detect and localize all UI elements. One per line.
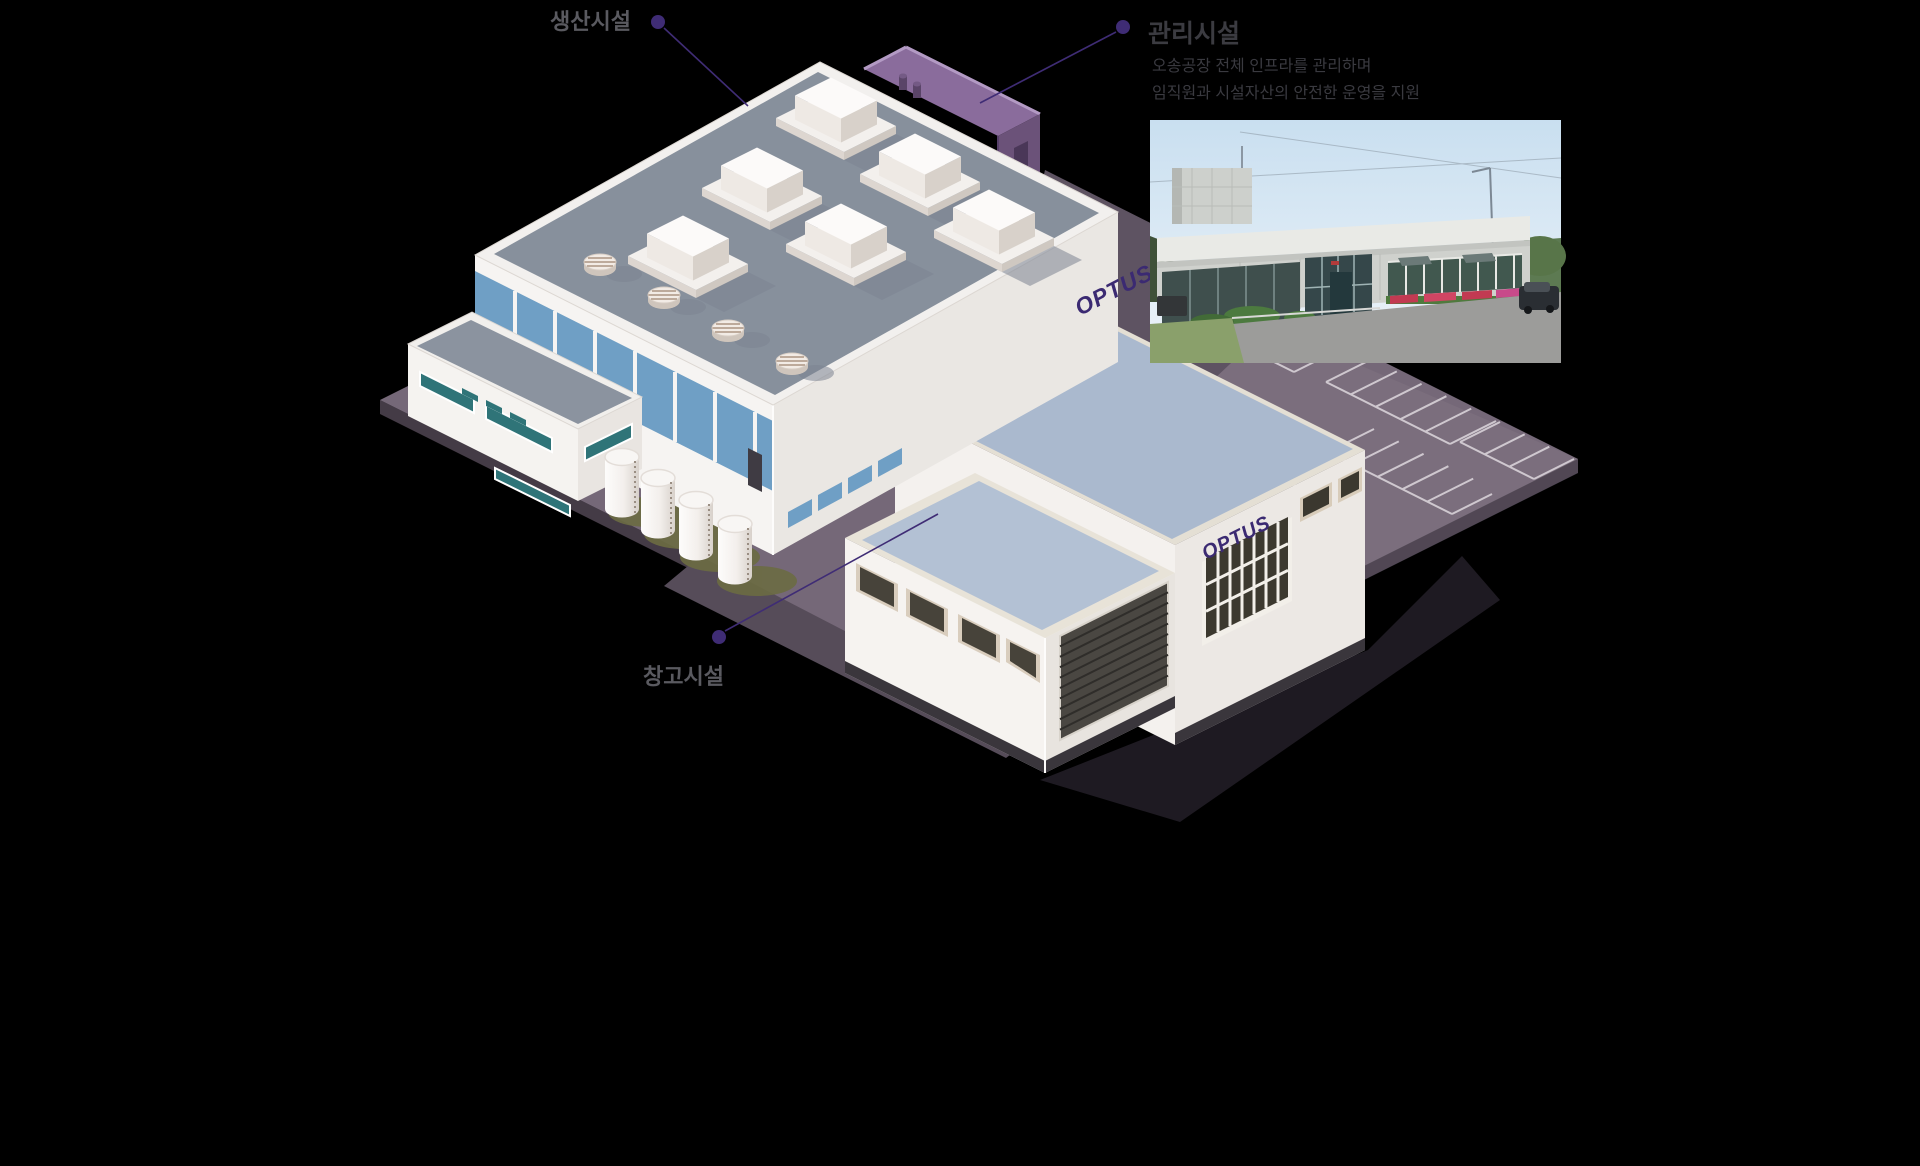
diagram-canvas: OPTUS [0, 0, 1920, 1166]
annotation-management: 관리시설 오송공장 전체 인프라를 관리하며 임직원과 시설자산의 안전한 운영… [980, 20, 1420, 103]
production-label: 생산시설 [550, 9, 631, 34]
management-description-line2: 임직원과 시설자산의 안전한 운영을 지원 [1152, 84, 1420, 102]
annotation-production: 생산시설 [550, 9, 748, 106]
management-description-line1: 오송공장 전체 인프라를 관리하며 [1152, 57, 1371, 75]
production-dot [651, 15, 665, 29]
side-door [748, 448, 762, 492]
management-facility-photo [1150, 120, 1566, 363]
production-leader-line [664, 28, 748, 106]
management-leader-line [980, 32, 1116, 103]
management-dot [1116, 20, 1130, 34]
warehouse-label: 창고시설 [643, 664, 724, 689]
warehouse-dot [712, 630, 726, 644]
management-label: 관리시설 [1148, 20, 1240, 48]
facility-isometric-diagram: OPTUS [0, 0, 1920, 1166]
